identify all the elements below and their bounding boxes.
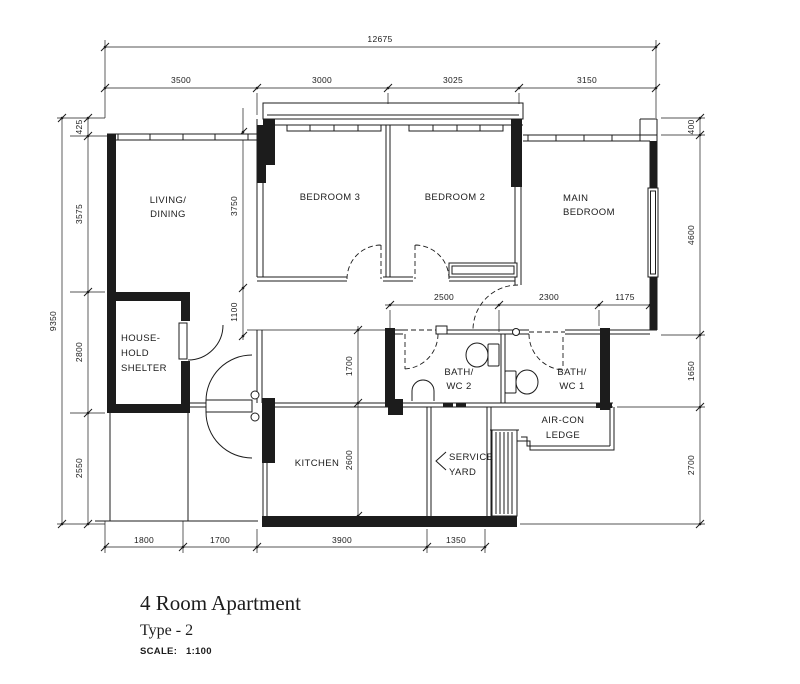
label-aircon-ledge-1: AIR-CON — [542, 415, 585, 426]
window-ledge-bay — [263, 103, 523, 119]
bath2-door-head-box — [436, 326, 447, 334]
toilet-bath2-bowl — [466, 343, 488, 367]
dim-overall-height: 9350 — [48, 311, 58, 331]
bath1-door-swing — [529, 332, 565, 370]
dim-right-4: 2700 — [686, 455, 696, 475]
bedroom2-door-swing — [415, 245, 449, 279]
label-bath-wc2-1: BATH/ — [444, 367, 473, 378]
column-bedroom2-right — [511, 119, 522, 187]
dim-left-2: 3575 — [74, 204, 84, 224]
dim-bottom-3: 3900 — [332, 535, 352, 545]
wall-bath1-right — [600, 328, 610, 410]
dim-top-4: 3150 — [577, 75, 597, 85]
label-main-bedroom-1: MAIN — [563, 193, 588, 204]
dimension-labels: 12675 3500 3000 3025 3150 9350 425 3575 … — [48, 34, 696, 545]
shelter-door-leaf — [179, 323, 187, 359]
window-mainbedroom-right-inner — [651, 191, 656, 274]
label-household-shelter-3: SHELTER — [121, 363, 167, 374]
dim-overall-width: 12675 — [367, 34, 392, 44]
label-service-yard-1: SERVICE — [449, 452, 493, 463]
wall-mainbedroom-right-upper — [650, 141, 657, 188]
room-labels: LIVING/ DINING BEDROOM 3 BEDROOM 2 MAIN … — [121, 192, 615, 478]
label-service-yard-2: YARD — [449, 467, 476, 478]
dim-right-1: 400 — [686, 119, 696, 134]
walls — [95, 103, 657, 521]
wall-lines — [95, 115, 657, 521]
structural-walls — [107, 119, 657, 527]
basin-bath2 — [412, 380, 434, 401]
label-living-dining-1: LIVING/ — [150, 195, 187, 206]
aircon-ledge-border — [517, 407, 614, 450]
wall-kitchen-left — [262, 398, 275, 463]
mainbedroom-door-hinge — [513, 329, 520, 336]
dim-right-2: 4600 — [686, 225, 696, 245]
dim-corridor-offset: 1100 — [229, 302, 239, 321]
wall-stub-serviceyard-door-a — [443, 403, 453, 407]
dim-left-4: 2550 — [74, 458, 84, 478]
shelter-door-swing-arc — [188, 325, 223, 360]
label-main-bedroom-2: BEDROOM — [563, 207, 615, 218]
wall-bath2-left — [385, 328, 395, 407]
dim-top-3: 3025 — [443, 75, 463, 85]
wall-mainbedroom-right-lower — [650, 277, 657, 330]
label-household-shelter-1: HOUSE- — [121, 333, 160, 344]
drawing-scale-label: SCALE: — [140, 646, 177, 657]
label-bath-wc1-1: BATH/ — [557, 367, 586, 378]
entrance-door-hinge-top — [251, 391, 259, 399]
wall-stub-serviceyard-door-b — [456, 403, 466, 407]
label-living-dining-2: DINING — [150, 209, 186, 220]
label-bath-wc2-2: WC 2 — [446, 381, 471, 392]
dim-left-3: 2800 — [74, 342, 84, 362]
bedroom3-door-swing — [347, 245, 381, 279]
toilet-bath1-cistern — [505, 371, 516, 393]
dim-top-1: 3500 — [171, 75, 191, 85]
drawing-title: 4 Room Apartment — [140, 591, 301, 615]
service-yard-leader — [436, 452, 446, 470]
dim-bath1-width: 2300 — [539, 292, 559, 302]
drawing-scale: SCALE:1:100 — [140, 646, 212, 657]
title-block: 4 Room Apartment Type - 2 SCALE:1:100 — [140, 591, 301, 657]
label-bedroom3: BEDROOM 3 — [300, 192, 361, 203]
label-bedroom2: BEDROOM 2 — [425, 192, 486, 203]
floor-plan-svg: LIVING/ DINING BEDROOM 3 BEDROOM 2 MAIN … — [0, 0, 800, 684]
dim-top-2: 3000 — [312, 75, 332, 85]
dim-bottom-4: 1350 — [446, 535, 466, 545]
wall-living-left — [107, 134, 116, 299]
wall-kitchen-bottom — [262, 516, 517, 527]
dim-left-1: 425 — [74, 119, 84, 134]
label-kitchen: KITCHEN — [295, 458, 340, 469]
dim-kitchen-depth: 2600 — [344, 450, 354, 470]
wall-bedroom3-left — [257, 125, 266, 183]
wardrobe-bedroom2-inner — [452, 266, 514, 274]
toilet-bath1-bowl — [516, 370, 538, 394]
dim-bedroom3-depth: 3750 — [229, 196, 239, 216]
mainbedroom-door-swing — [473, 285, 518, 330]
label-bath-wc1-2: WC 1 — [559, 381, 584, 392]
dim-bottom-2: 1700 — [210, 535, 230, 545]
bath2-door-swing — [403, 330, 438, 369]
entrance-door-leaf — [206, 400, 252, 412]
wall-stub-bath2-bottom — [388, 399, 403, 415]
dim-ledge-offset: 1175 — [615, 292, 634, 302]
entrance-door-hinge-bottom — [251, 413, 259, 421]
window-bedroom2 — [409, 125, 503, 131]
dim-hall-width: 1700 — [344, 356, 354, 376]
dim-bath2-width: 2500 — [434, 292, 454, 302]
floor-plan-page: LIVING/ DINING BEDROOM 3 BEDROOM 2 MAIN … — [0, 0, 800, 684]
drawing-type: Type - 2 — [140, 622, 193, 639]
toilet-bath2-cistern — [488, 344, 499, 366]
dim-right-3: 1650 — [686, 361, 696, 381]
label-aircon-ledge-2: LEDGE — [546, 430, 580, 441]
dim-bottom-1: 1800 — [134, 535, 154, 545]
drawing-scale-value: 1:100 — [186, 646, 212, 657]
label-household-shelter-2: HOLD — [121, 348, 149, 359]
